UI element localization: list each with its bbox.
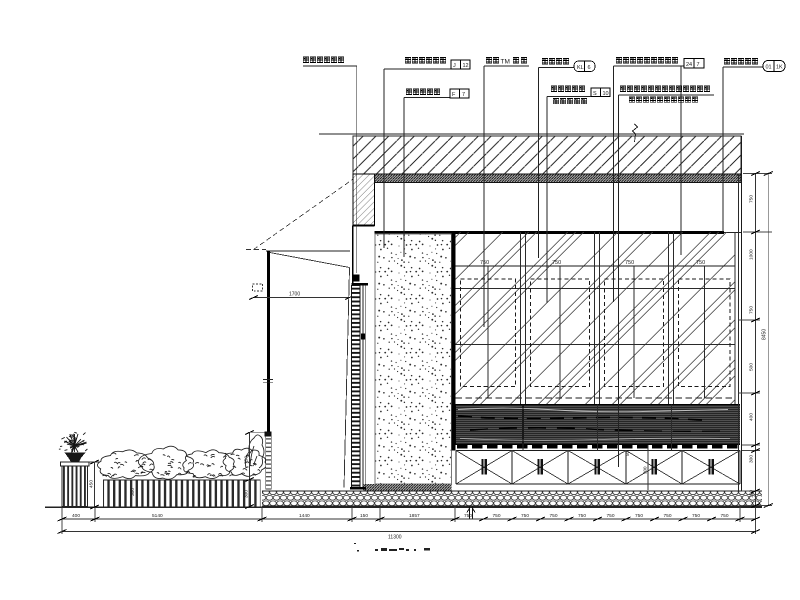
svg-text:750: 750	[749, 195, 755, 203]
svg-text:750: 750	[480, 260, 489, 266]
svg-text:300: 300	[643, 466, 648, 474]
svg-text:750: 750	[550, 513, 558, 519]
svg-text:KL: KL	[577, 65, 584, 71]
svg-text:750: 750	[692, 513, 700, 519]
svg-text:50: 50	[625, 450, 630, 456]
svg-text:1440: 1440	[299, 513, 310, 519]
svg-text:750: 750	[664, 513, 672, 519]
svg-text:S: S	[593, 91, 597, 97]
svg-text:750: 750	[552, 260, 561, 266]
svg-text:10: 10	[603, 91, 609, 97]
svg-text:TM: TM	[501, 59, 510, 66]
svg-text:400: 400	[749, 413, 755, 421]
svg-text:01: 01	[766, 65, 772, 71]
svg-text:24: 24	[686, 62, 692, 68]
svg-text:400: 400	[72, 513, 80, 519]
svg-text:750: 750	[493, 513, 501, 519]
svg-text:1000: 1000	[749, 249, 755, 260]
svg-text:120: 120	[749, 490, 755, 498]
svg-text:8450: 8450	[762, 329, 768, 340]
svg-text:6: 6	[588, 65, 591, 71]
svg-text:500: 500	[749, 363, 755, 371]
svg-text:750: 750	[625, 260, 634, 266]
svg-text:750: 750	[635, 513, 643, 519]
svg-text:11300: 11300	[388, 535, 402, 541]
svg-text:300: 300	[244, 490, 250, 498]
svg-text:750: 750	[721, 513, 729, 519]
svg-text:300: 300	[749, 455, 755, 463]
svg-text:300: 300	[130, 488, 136, 496]
svg-text:750: 750	[607, 513, 615, 519]
svg-text:1700: 1700	[289, 292, 300, 298]
svg-text:12: 12	[463, 63, 469, 69]
svg-text:150: 150	[360, 513, 368, 519]
svg-text:750: 750	[749, 306, 755, 314]
svg-text:1857: 1857	[409, 513, 420, 519]
svg-text:750: 750	[696, 260, 705, 266]
svg-text:750: 750	[464, 513, 472, 519]
svg-text:J: J	[453, 63, 456, 69]
svg-text:750: 750	[578, 513, 586, 519]
svg-text:1K: 1K	[776, 65, 783, 71]
svg-text:7: 7	[462, 92, 465, 98]
svg-text:7: 7	[697, 62, 700, 68]
svg-text:750: 750	[244, 456, 250, 464]
svg-text:5140: 5140	[152, 513, 163, 519]
svg-text:450: 450	[89, 480, 95, 488]
svg-text:750: 750	[521, 513, 529, 519]
